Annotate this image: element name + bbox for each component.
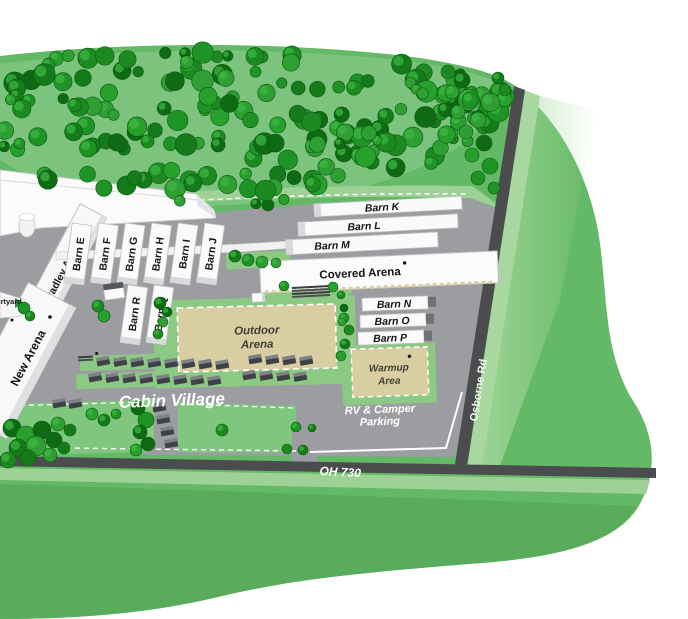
rv-parking-label-2: Parking bbox=[360, 415, 401, 428]
barn-o-label: Barn O bbox=[374, 315, 409, 328]
barn-l-label: Barn L bbox=[347, 220, 381, 234]
grass-lower-band bbox=[0, 484, 636, 619]
warmup-label-2: Area bbox=[377, 376, 401, 388]
outdoor-arena-label-1: Outdoor bbox=[234, 324, 280, 337]
outdoor-arena-label-2: Arena bbox=[240, 339, 275, 352]
cabin-village-label: Cabin Village bbox=[118, 389, 225, 412]
island-bottom-mid bbox=[178, 402, 296, 453]
new-arena-marker-dot bbox=[48, 315, 52, 319]
warmup-label-1: Warmup bbox=[369, 362, 409, 374]
barn-m-label: Barn M bbox=[314, 239, 350, 253]
map-canvas: Outdoor Arena Warmup Area Bradley Arena … bbox=[0, 0, 688, 619]
barn-p-label: Barn P bbox=[373, 332, 408, 345]
facility-map: Outdoor Arena Warmup Area Bradley Arena … bbox=[0, 0, 688, 619]
barn-n-group: Barn N bbox=[362, 296, 436, 312]
barn-o-group: Barn O bbox=[360, 313, 434, 329]
oh730-label: OH 730 bbox=[319, 464, 361, 480]
small-shed bbox=[252, 293, 265, 303]
barn-p-group: Barn P bbox=[358, 330, 432, 346]
barn-n-label: Barn N bbox=[377, 298, 412, 311]
small-building bbox=[103, 282, 125, 301]
barn-k-label: Barn K bbox=[365, 201, 401, 215]
courtyard-marker-dot bbox=[11, 319, 14, 322]
